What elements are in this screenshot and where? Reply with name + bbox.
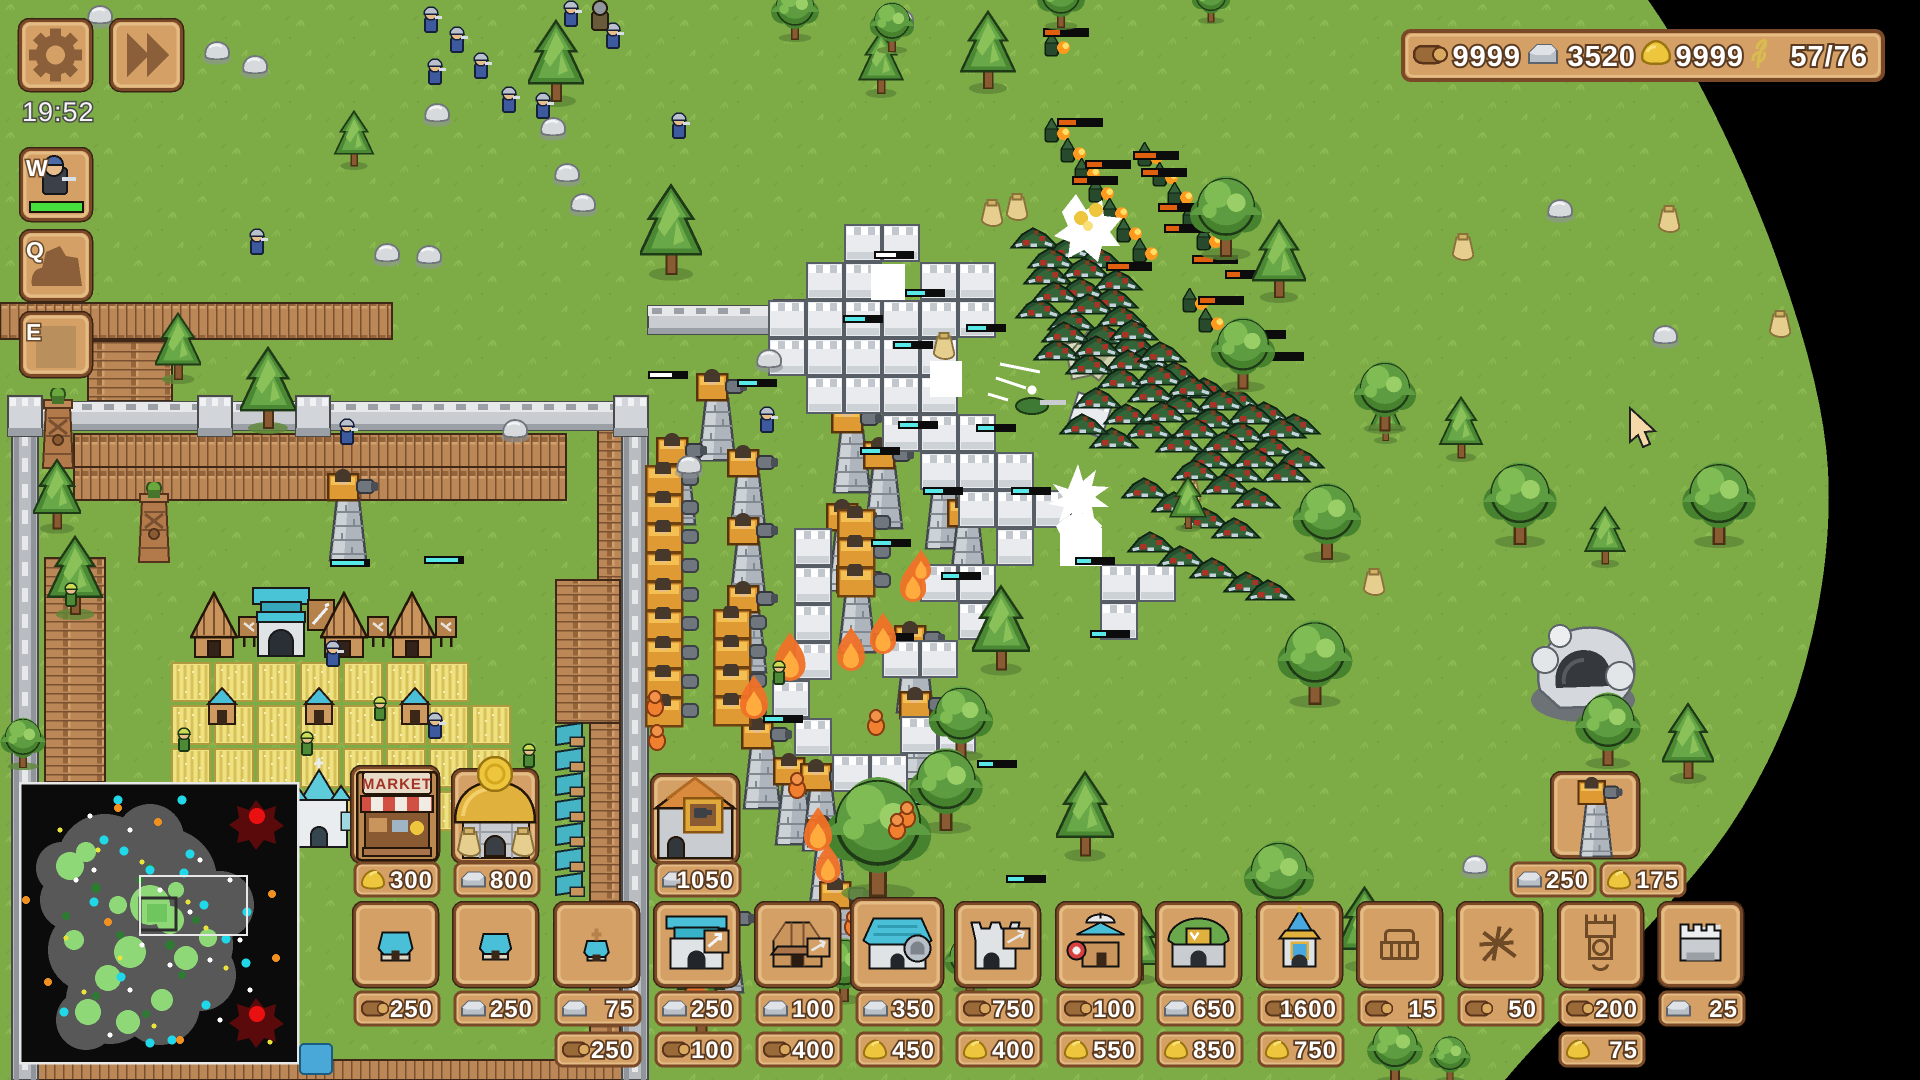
svg-text:9999: 9999 bbox=[1452, 41, 1521, 73]
svg-text:1600: 1600 bbox=[1280, 996, 1337, 1023]
svg-text:57/76: 57/76 bbox=[1790, 41, 1868, 73]
svg-text:E: E bbox=[26, 319, 41, 345]
svg-text:750: 750 bbox=[992, 996, 1035, 1023]
svg-text:400: 400 bbox=[992, 1037, 1035, 1064]
svg-text:3520: 3520 bbox=[1567, 41, 1636, 73]
svg-text:75: 75 bbox=[605, 996, 634, 1023]
svg-text:MARKET: MARKET bbox=[362, 776, 432, 793]
svg-text:175: 175 bbox=[1636, 867, 1679, 894]
svg-text:1050: 1050 bbox=[677, 867, 734, 894]
svg-text:Q: Q bbox=[26, 237, 44, 263]
svg-text:250: 250 bbox=[1546, 867, 1589, 894]
svg-text:450: 450 bbox=[892, 1037, 935, 1064]
svg-text:650: 650 bbox=[1193, 996, 1236, 1023]
svg-text:800: 800 bbox=[490, 867, 533, 894]
svg-text:75: 75 bbox=[1609, 1037, 1638, 1064]
svg-text:300: 300 bbox=[390, 867, 433, 894]
svg-text:400: 400 bbox=[792, 1037, 835, 1064]
svg-text:W: W bbox=[26, 155, 48, 181]
svg-text:250: 250 bbox=[591, 1037, 634, 1064]
svg-text:200: 200 bbox=[1595, 996, 1638, 1023]
svg-text:25: 25 bbox=[1709, 996, 1738, 1023]
svg-text:850: 850 bbox=[1193, 1037, 1236, 1064]
svg-text:250: 250 bbox=[691, 996, 734, 1023]
svg-text:9999: 9999 bbox=[1675, 41, 1744, 73]
svg-text:15: 15 bbox=[1408, 996, 1437, 1023]
svg-text:100: 100 bbox=[792, 996, 835, 1023]
svg-text:250: 250 bbox=[490, 996, 533, 1023]
svg-text:100: 100 bbox=[691, 1037, 734, 1064]
svg-text:19:52: 19:52 bbox=[22, 97, 95, 127]
svg-text:750: 750 bbox=[1294, 1037, 1337, 1064]
svg-text:50: 50 bbox=[1508, 996, 1537, 1023]
svg-text:350: 350 bbox=[892, 996, 935, 1023]
svg-text:100: 100 bbox=[1093, 996, 1136, 1023]
svg-text:250: 250 bbox=[390, 996, 433, 1023]
svg-text:550: 550 bbox=[1093, 1037, 1136, 1064]
